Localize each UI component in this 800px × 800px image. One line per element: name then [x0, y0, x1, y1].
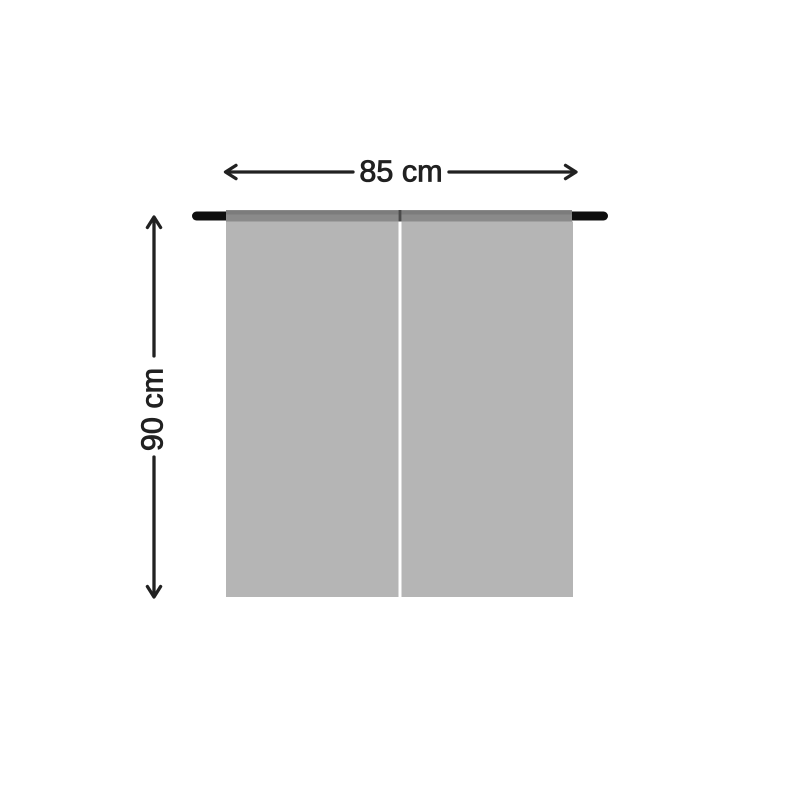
- svg-text:90 cm: 90 cm: [136, 368, 170, 451]
- svg-text:85 cm: 85 cm: [359, 155, 442, 189]
